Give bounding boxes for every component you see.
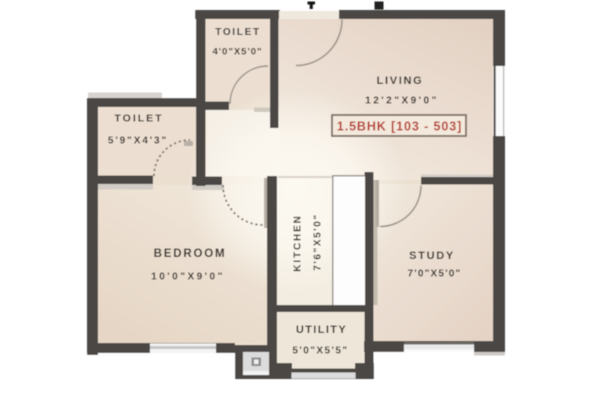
svg-text:12'2"X9'0": 12'2"X9'0" <box>365 96 439 107</box>
svg-text:UTILITY: UTILITY <box>296 324 347 336</box>
svg-text:BEDROOM: BEDROOM <box>154 248 227 260</box>
svg-text:4'0"X5'0": 4'0"X5'0" <box>213 47 263 58</box>
svg-text:TOILET: TOILET <box>114 113 163 125</box>
svg-text:7'6"X5'0": 7'6"X5'0" <box>313 213 324 271</box>
svg-text:TOILET: TOILET <box>215 27 261 38</box>
svg-text:5'9"X4'3": 5'9"X4'3" <box>108 136 168 147</box>
svg-text:5'0"X5'5": 5'0"X5'5" <box>292 346 348 357</box>
svg-text:1.5BHK [103 - 503]: 1.5BHK [103 - 503] <box>337 120 462 134</box>
svg-text:LIVING: LIVING <box>377 75 424 87</box>
svg-text:10'0"X9'0": 10'0"X9'0" <box>151 272 225 283</box>
svg-text:7'0"X5'0": 7'0"X5'0" <box>408 269 462 280</box>
svg-text:STUDY: STUDY <box>409 250 455 262</box>
svg-text:KITCHEN: KITCHEN <box>293 214 304 271</box>
